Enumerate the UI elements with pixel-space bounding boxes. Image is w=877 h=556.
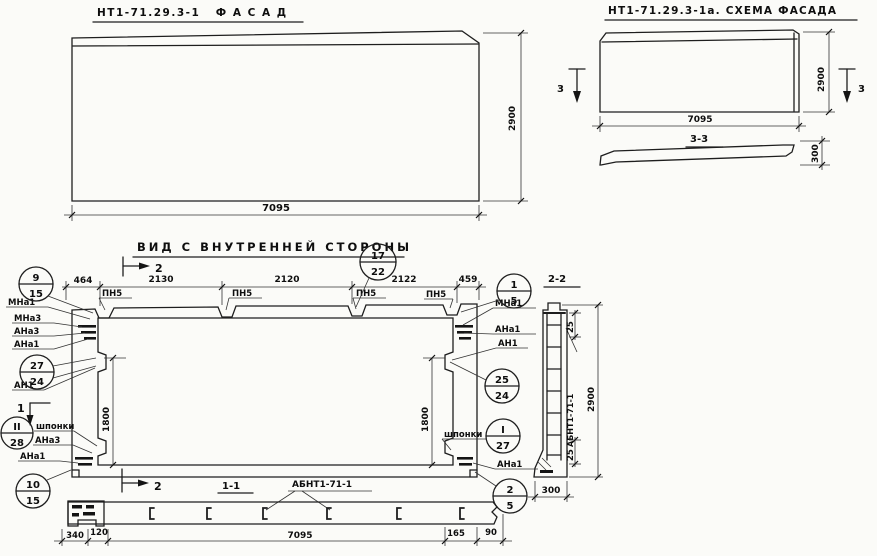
channel-anchor-mark — [397, 508, 401, 519]
rebar-cage-label: АБНТ1-71-1 — [566, 393, 575, 447]
facade-view: НТ1-71.29.3-1 Ф А С А Д 2900 7095 — [64, 7, 528, 221]
dim-2900-section: 2900 — [587, 387, 597, 412]
callout-top: 27 — [30, 361, 44, 372]
section-2-2-title: 2-2 — [548, 274, 566, 285]
strip-section-outline — [600, 145, 794, 165]
inner-view: ВИД С ВНУТРЕННЕЙ СТОРОНЫ 2 464 2130 2120… — [1, 239, 538, 513]
facade-schema-view: НТ1-71.29.3-1а. СХЕМА ФАСАДА 3 3 2900 70… — [557, 5, 865, 170]
drawing-canvas: НТ1-71.29.3-1 Ф А С А Д 2900 7095 НТ1-71… — [0, 0, 877, 556]
dim-120: 120 — [90, 528, 108, 538]
embed-plate-mark — [459, 337, 471, 340]
schema-width-dim: 7095 — [687, 115, 712, 125]
dim-1800-left: 1800 — [102, 407, 112, 432]
callout-top: 25 — [495, 375, 509, 386]
leader-line — [48, 307, 90, 319]
leader-line — [302, 491, 330, 510]
schema-panel-outline — [600, 30, 799, 112]
embed-plate-mark — [455, 325, 473, 328]
dim-1800-right: 1800 — [421, 407, 431, 432]
channel-anchor-mark — [460, 508, 464, 519]
leader-line — [53, 358, 96, 366]
dim-7095-strip: 7095 — [287, 531, 312, 541]
anchor-mark — [83, 512, 95, 516]
hatch-line — [538, 462, 546, 470]
callout-bottom: 28 — [10, 438, 24, 449]
label-ana3-left: АНа3 — [14, 327, 39, 337]
leader-line — [54, 323, 82, 327]
callout-II-28: II 28 — [1, 417, 33, 449]
callout-25-24: 25 24 — [450, 362, 519, 403]
facade-title: НТ1-71.29.3-1 Ф А С А Д — [97, 7, 288, 19]
callout-top: 2 — [507, 485, 514, 496]
section-cut-3-left: 3 — [557, 69, 585, 103]
rib-section-outline — [534, 303, 567, 477]
label-shponki-left: шпонки — [36, 422, 74, 432]
label-pn5-1: ПН5 — [102, 289, 122, 299]
callout-bottom: 24 — [30, 377, 44, 388]
callout-bottom: 27 — [496, 441, 510, 452]
leader-line — [44, 368, 95, 390]
callout-10-15: 10 15 — [16, 470, 71, 508]
label-ana1-right: АНа1 — [495, 325, 520, 335]
leader-line — [450, 299, 453, 308]
dim-165: 165 — [447, 529, 465, 539]
section-cut-2-top: 2 — [123, 257, 163, 276]
callout-bottom: 15 — [26, 496, 40, 507]
label-ana1-left: АНа1 — [14, 340, 39, 350]
leader-line — [60, 461, 78, 463]
section-1-1-title: 1-1 — [222, 481, 240, 492]
leader-line — [54, 339, 88, 349]
callout-I-27: I 27 — [486, 419, 520, 453]
blueprint-page: НТ1-71.29.3-1 Ф А С А Д 2900 7095 НТ1-71… — [0, 0, 877, 556]
facade-height-dim: 2900 — [508, 106, 518, 131]
strip-outline — [68, 502, 497, 524]
cut-label: 3 — [557, 84, 564, 95]
leader-line — [73, 445, 92, 453]
anchor-mark — [72, 505, 82, 509]
cut-label: 2 — [155, 262, 163, 275]
leader-line — [353, 298, 356, 309]
label-pn5-3: ПН5 — [356, 289, 376, 299]
dim-2130: 2130 — [148, 275, 173, 285]
embed-plate-mark — [84, 337, 96, 340]
dim-300-section: 300 — [542, 486, 561, 496]
dim-340: 340 — [66, 531, 84, 541]
callout-bottom: 24 — [495, 391, 509, 402]
strip-rebar-label: АБНТ1-71-1 — [292, 480, 352, 490]
leader-line — [461, 300, 499, 312]
dim-25-top: 25 — [566, 321, 576, 333]
embed-plate-mark — [459, 463, 472, 466]
callout-top: 17 — [371, 251, 385, 262]
facade-panel-outline — [72, 31, 479, 201]
label-ana3-left-bottom: АНа3 — [35, 436, 60, 446]
channel-anchor-mark — [207, 508, 211, 519]
callout-top: 10 — [26, 480, 40, 491]
cut-label: 2 — [154, 480, 162, 493]
leader-line — [48, 296, 93, 313]
section-cut-3-right: 3 — [839, 69, 865, 103]
leader-line — [475, 472, 496, 486]
embed-plate-mark — [540, 470, 553, 473]
leader-line — [473, 463, 495, 469]
label-ana1-left-bottom: АНа1 — [20, 452, 45, 462]
cut-arrow — [139, 263, 150, 270]
leader-line — [53, 366, 96, 378]
callout-top: 9 — [33, 273, 40, 284]
channel-anchor-mark — [150, 508, 154, 519]
dim-2120: 2120 — [274, 275, 299, 285]
callout-bottom: 15 — [29, 289, 43, 300]
strip-thickness-dim: 300 — [811, 144, 821, 163]
label-shponki-right: шпонки — [444, 430, 482, 440]
leader-line — [47, 470, 71, 480]
cut-arrow — [843, 91, 851, 103]
facade-top-ridge-line — [73, 44, 478, 46]
embed-plate-mark — [75, 457, 93, 460]
leader-line — [464, 333, 493, 334]
schema-title: НТ1-71.29.3-1а. СХЕМА ФАСАДА — [608, 5, 837, 17]
dim-2122: 2122 — [391, 275, 416, 285]
cut-arrow — [138, 480, 149, 487]
callout-bottom: 22 — [371, 267, 385, 278]
anchor-mark — [86, 505, 94, 509]
schema-top-ridge-line — [602, 39, 797, 42]
callout-bottom: 5 — [507, 501, 514, 512]
cut-label: 3 — [858, 84, 865, 95]
schema-height-dim: 2900 — [817, 67, 827, 92]
label-an1-right: АН1 — [498, 339, 518, 349]
dim-464: 464 — [74, 276, 93, 286]
cut-arrow — [573, 91, 581, 103]
dim-459: 459 — [459, 275, 478, 285]
label-mna3-left: МНа3 — [14, 314, 41, 324]
anchor-mark — [72, 513, 79, 517]
facade-width-dim: 7095 — [262, 203, 290, 214]
dim-90: 90 — [485, 528, 497, 538]
leader-line — [266, 491, 295, 510]
label-pn5-2: ПН5 — [232, 289, 252, 299]
leader-line — [452, 348, 496, 360]
leader-line — [226, 298, 229, 310]
embed-plate-mark — [78, 463, 92, 466]
callout-top: 1 — [511, 280, 518, 291]
embed-plate-mark — [457, 457, 473, 460]
section-1-1: 2 1-1 АБНТ1-71-1 340 120 7095 — [54, 469, 512, 546]
leader-line — [74, 431, 97, 446]
panel-opening-outline — [98, 318, 453, 465]
section-2-2: 2-2 АБНТ1-71-1 25 25 2900 — [528, 274, 603, 502]
panel-outline — [72, 304, 477, 477]
label-ana1-right-bottom: АНа1 — [497, 460, 522, 470]
callout-top: II — [13, 422, 20, 433]
dim-25-bottom: 25 — [566, 449, 576, 461]
leader-line — [450, 362, 486, 380]
label-pn5-4: ПН5 — [426, 290, 446, 300]
callout-bottom: 5 — [511, 296, 518, 307]
callout-2-5: 2 5 — [475, 472, 527, 513]
section-cut-2-bottom: 2 — [122, 469, 162, 493]
leader-line — [54, 333, 85, 336]
callout-top: I — [501, 425, 505, 436]
leader-line — [463, 308, 493, 325]
section-3-3-title: 3-3 — [690, 134, 708, 145]
cut-label: 1 — [17, 402, 25, 415]
